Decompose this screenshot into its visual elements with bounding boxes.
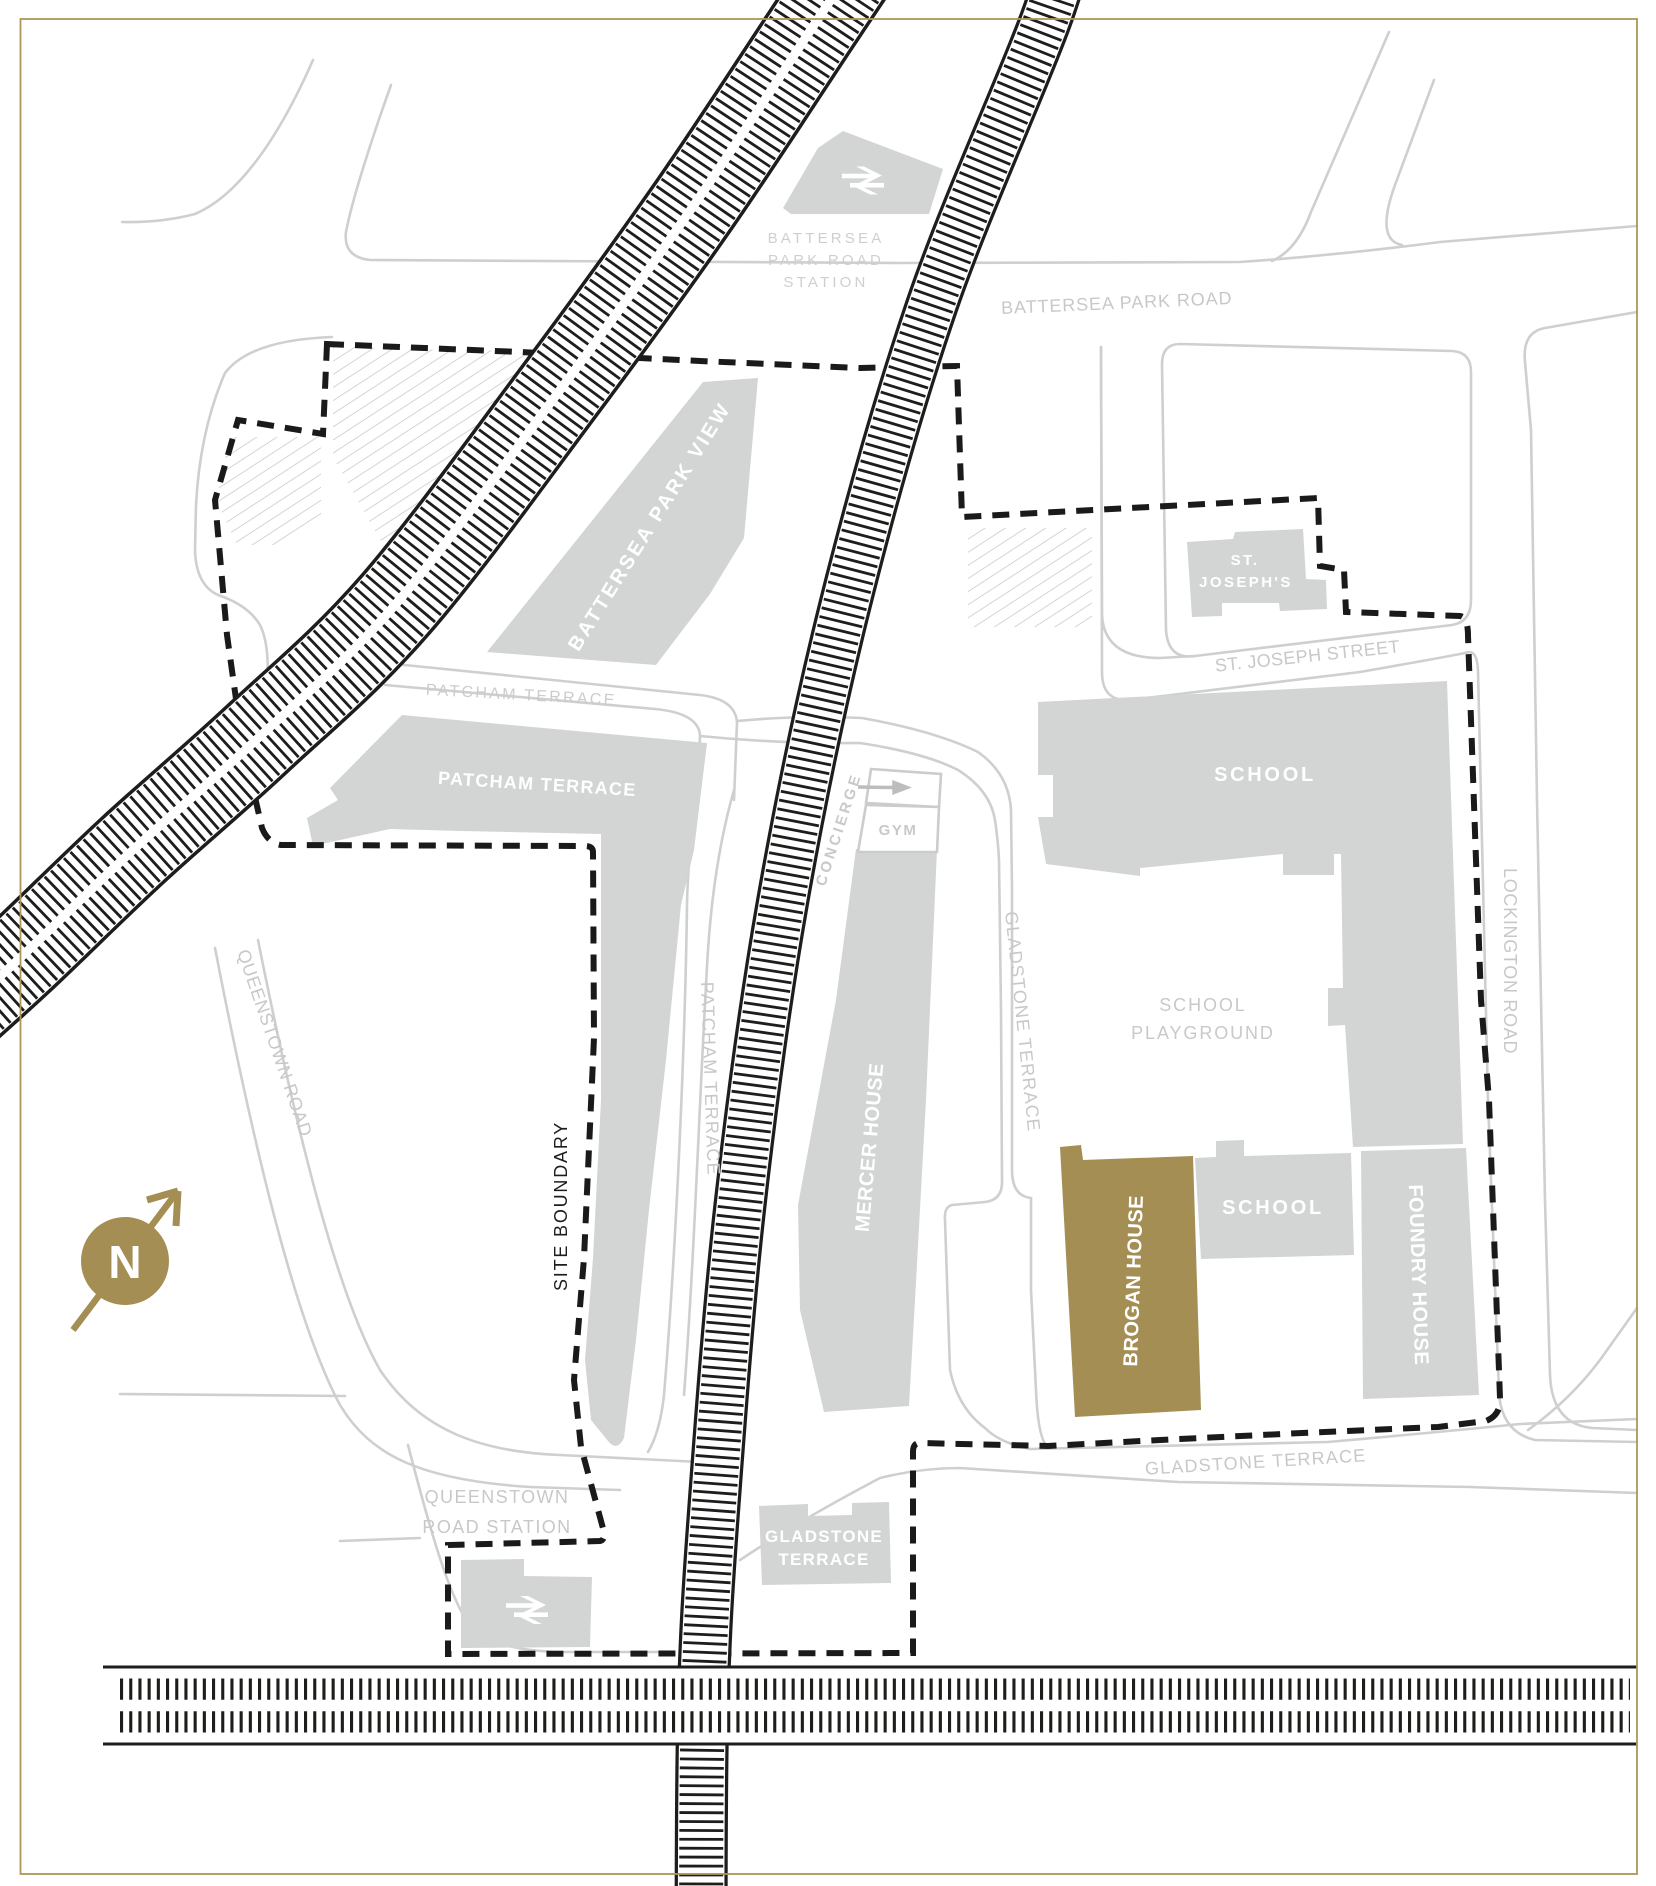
svg-text:SITE BOUNDARY: SITE BOUNDARY [551,1121,571,1291]
svg-text:SCHOOL: SCHOOL [1222,1197,1324,1219]
svg-text:PLAYGROUND: PLAYGROUND [1131,1023,1275,1043]
svg-text:GLADSTONE: GLADSTONE [765,1527,883,1546]
svg-text:GYM: GYM [879,822,918,839]
svg-text:JOSEPH'S: JOSEPH'S [1199,574,1293,591]
svg-text:BATTERSEA: BATTERSEA [768,230,885,247]
svg-text:TERRACE: TERRACE [778,1550,869,1569]
svg-text:QUEENSTOWN: QUEENSTOWN [425,1487,570,1507]
svg-text:ROAD STATION: ROAD STATION [422,1517,571,1537]
svg-text:SCHOOL: SCHOOL [1214,764,1316,786]
svg-text:STATION: STATION [783,274,868,291]
svg-text:PARK ROAD: PARK ROAD [768,252,884,269]
svg-text:SCHOOL: SCHOOL [1159,995,1246,1015]
svg-text:LOCKINGTON ROAD: LOCKINGTON ROAD [1500,868,1520,1054]
svg-text:N: N [108,1236,141,1288]
svg-text:ST.: ST. [1231,552,1260,569]
